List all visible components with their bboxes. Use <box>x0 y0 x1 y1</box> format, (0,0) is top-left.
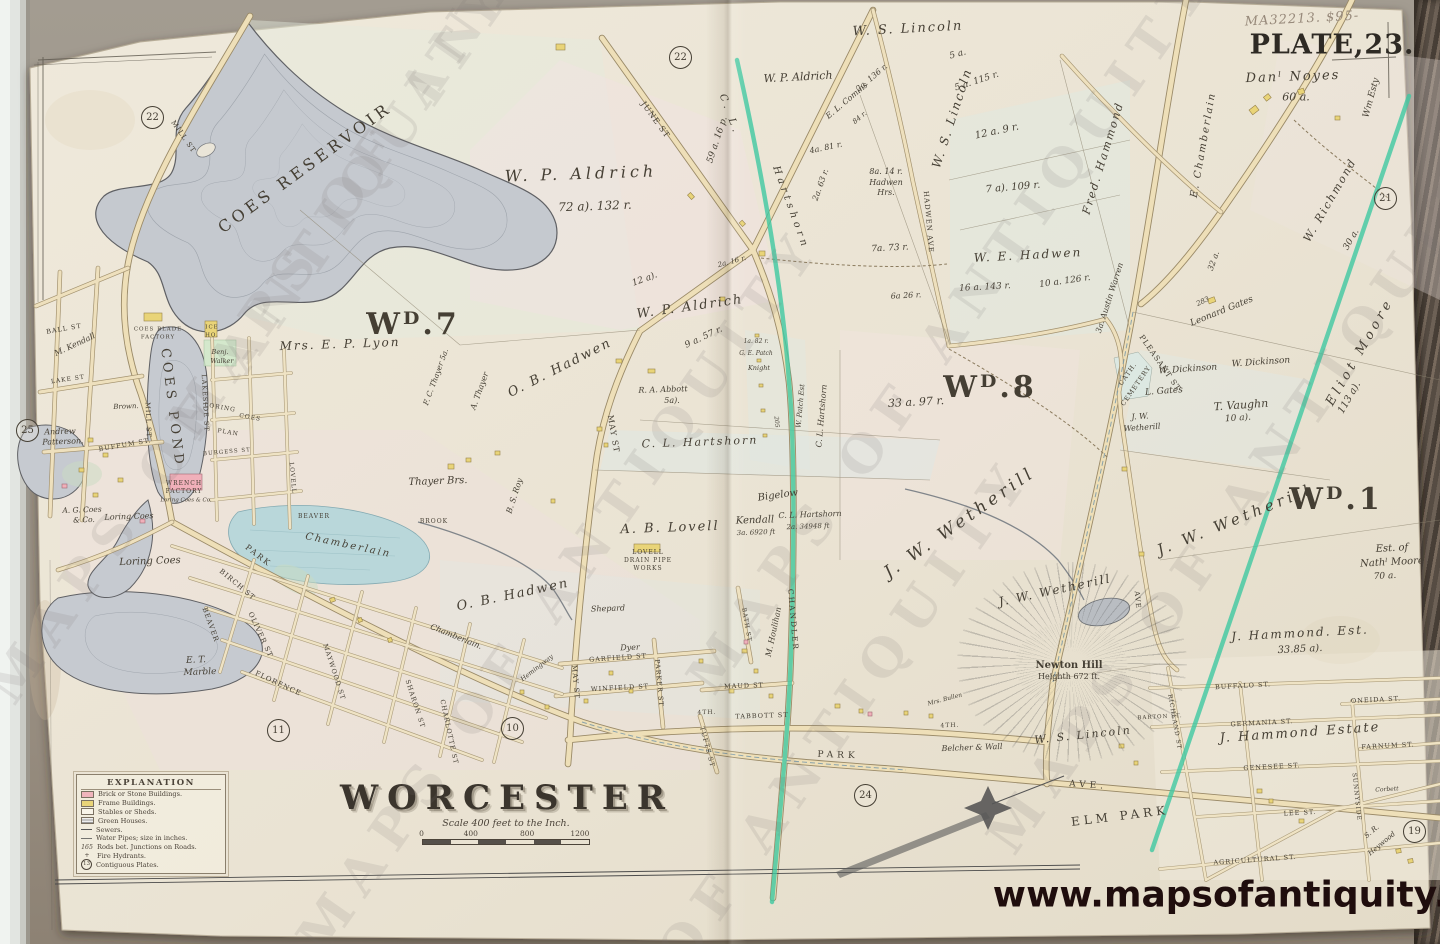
map-label: BEAVER <box>298 514 330 520</box>
map-label: 33 a. 97 r. <box>888 395 945 409</box>
map-label: Newton Hill <box>1036 661 1103 671</box>
scale-segment <box>534 840 562 844</box>
map-label: LEE ST. <box>1283 809 1316 817</box>
legend-label: Sewers. <box>96 826 123 834</box>
map-label: FACTORY <box>166 489 203 495</box>
legend-item: Frame Buildings. <box>81 799 221 808</box>
map-label: TABBOTT ST <box>735 712 789 720</box>
plate-ref-circle: 21 <box>1374 187 1397 210</box>
map-label: Brown. <box>113 403 139 411</box>
map-label: Shepard <box>591 604 625 613</box>
legend-label: Fire Hydrants. <box>97 852 146 860</box>
legend-swatch-outline <box>81 808 94 815</box>
plate-ref-circle: 11 <box>267 719 290 742</box>
scale-bar-segments <box>422 839 590 845</box>
legend-label: Rods bet. Junctions on Roads. <box>97 843 197 851</box>
map-label: 60 a. <box>1282 92 1310 103</box>
scale-caption: Scale 400 feet to the Inch. <box>418 818 594 829</box>
map-label: Loring Coes <box>119 556 181 568</box>
scale-segment <box>423 840 451 844</box>
legend-items: Brick or Stone Buildings.Frame Buildings… <box>81 790 221 869</box>
map-label: 205 <box>773 416 780 428</box>
map-label: W. P. Aldrich <box>763 70 833 85</box>
legend-swatch-pipe <box>81 836 92 841</box>
legend-item: Stables or Sheds. <box>81 808 221 817</box>
legend-symbol-circle: 13 <box>81 859 92 870</box>
map-label: Andrew <box>44 427 76 436</box>
legend-item: Brick or Stone Buildings. <box>81 790 221 799</box>
map-label: AVE <box>1133 591 1142 609</box>
map-label: Wᴰ.8 <box>943 373 1036 403</box>
scale-tick: 1200 <box>570 829 589 838</box>
map-label: Loring Coes & Co. <box>160 498 211 504</box>
plate-ref-circle: 24 <box>854 784 877 807</box>
map-label: 3a. 6920 ft <box>737 529 776 537</box>
legend-symbol-num: 165 <box>81 844 93 851</box>
map-label: 70 a. <box>1374 572 1397 582</box>
map-label: ICE <box>205 325 218 331</box>
scale-tick: 0 <box>419 829 424 838</box>
legend-label: Stables or Sheds. <box>98 808 156 816</box>
legend-swatch-sewer <box>81 827 92 832</box>
legend-item: Sewers. <box>81 825 221 834</box>
map-label: PARK <box>817 751 859 761</box>
scale-segment <box>561 840 589 844</box>
scale-tick: 400 <box>464 829 478 838</box>
map-label: Thayer Brs. <box>408 476 467 488</box>
legend-title: EXPLANATION <box>81 778 221 790</box>
scale-tick: 800 <box>520 829 534 838</box>
map-label: MILL ST <box>144 402 152 438</box>
map-label: 5a). <box>664 397 680 405</box>
map-label: 4TH. <box>940 723 959 730</box>
map-label: Benj. <box>212 349 229 356</box>
map-label: Kendall <box>736 515 775 526</box>
legend-label: Water Pipes; size in inches. <box>96 834 187 842</box>
scale-segment <box>478 840 506 844</box>
legend-item: 165Rods bet. Junctions on Roads. <box>81 843 221 852</box>
legend-item: 13Contiguous Plates. <box>81 860 221 869</box>
map-label: Walker <box>211 358 234 365</box>
map-label: DRAIN PIPE <box>624 558 672 564</box>
map-label: 8a. 14 r. <box>869 168 902 176</box>
map-label: Dyer <box>620 644 640 653</box>
map-label: R. A. Abbott <box>638 385 687 395</box>
map-label: FACTORY <box>141 335 175 341</box>
legend-label: Frame Buildings. <box>98 799 156 807</box>
map-label: Patterson. <box>42 437 84 446</box>
scale-segment <box>451 840 479 844</box>
plate-ref-circle: 25 <box>16 419 39 442</box>
antique-map-scan: W. S. LincolnW. P. AldrichDanˡ Noyes60 a… <box>0 0 1440 944</box>
legend-label: Contiguous Plates. <box>96 861 159 869</box>
map-label: COES BLADE <box>134 327 182 333</box>
map-label: 4TH. <box>697 710 716 717</box>
scale-tick-labels: 04008001200 <box>418 829 594 838</box>
map-label: Heighth 672 ft. <box>1038 673 1100 681</box>
plate-title: PLATE,23. <box>1250 30 1415 61</box>
map-label: HO. <box>205 333 219 339</box>
map-label: T. Vaughn <box>1213 398 1268 413</box>
legend-swatch-pink <box>81 791 94 798</box>
map-label: Loring Coes <box>104 512 153 522</box>
map-label: 2a. 34948 ft <box>786 523 829 531</box>
map-label: LOVELL <box>632 550 663 556</box>
map-label: WRENCH <box>166 481 202 487</box>
map-label: E. T. <box>186 656 206 666</box>
map-label: Hrs. <box>877 189 894 197</box>
map-label: Knight <box>748 365 770 372</box>
legend-label: Green Houses. <box>98 817 147 825</box>
map-label: 6a 26 r. <box>890 291 921 301</box>
scale-bar: Scale 400 feet to the Inch. 04008001200 <box>418 818 594 845</box>
legend-item: Green Houses. <box>81 816 221 825</box>
map-label: & Co. <box>73 516 95 524</box>
map-label: Hadwen <box>869 179 903 187</box>
map-label: 10 a). <box>1225 414 1252 425</box>
legend-item: Water Pipes; size in inches. <box>81 834 221 843</box>
map-label: J. W. <box>1131 412 1149 421</box>
legend-label: Brick or Stone Buildings. <box>98 790 182 798</box>
map-label: A. B. Lovell <box>620 520 720 536</box>
map-label: Est. of <box>1375 543 1408 555</box>
plate-ref-circle: 22 <box>669 46 692 69</box>
map-label: Marble <box>183 668 216 678</box>
legend-explanation: EXPLANATION Brick or Stone Buildings.Fra… <box>76 774 226 874</box>
legend-swatch-yellow <box>81 800 94 807</box>
map-label: G. E. Patch <box>739 351 773 357</box>
plate-ref-circle: 19 <box>1403 820 1426 843</box>
plate-ref-circle: 22 <box>141 106 164 129</box>
legend-item: +Fire Hydrants. <box>81 852 221 861</box>
map-label: 1a. 82 r. <box>744 339 769 345</box>
map-label: 72 a). 132 r. <box>558 199 632 214</box>
legend-swatch-hatch <box>81 817 94 824</box>
map-label: MAUD ST <box>724 682 764 690</box>
plate-ref-circle: 10 <box>501 717 524 740</box>
map-label: Danˡ Noyes <box>1245 69 1340 85</box>
map-label: WORKS <box>633 566 662 572</box>
map-label: Corbett <box>1375 786 1399 793</box>
map-label: A. G. Coes <box>62 506 101 515</box>
scale-segment <box>506 840 534 844</box>
seller-watermark-url: www.mapsofantiquity.com <box>993 875 1440 916</box>
map-label: BROOK <box>420 519 448 525</box>
map-title-worcester: WORCESTER <box>340 778 674 818</box>
